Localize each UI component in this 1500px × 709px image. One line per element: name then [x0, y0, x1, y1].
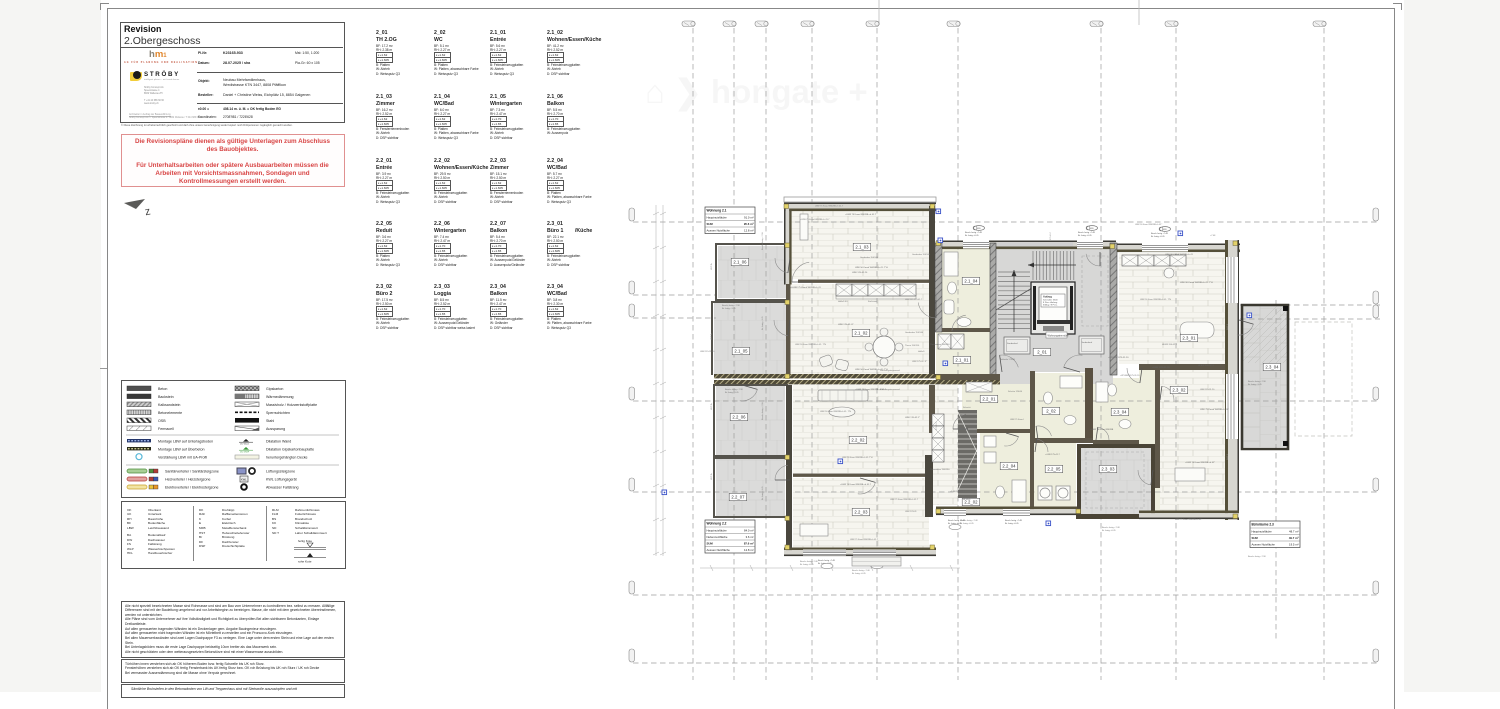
svg-text:Aussparung: Aussparung — [266, 427, 285, 431]
svg-text:OSB: OSB — [158, 419, 166, 423]
svg-text:Br. fertig +0.45: Br. fertig +0.45 — [1005, 522, 1019, 525]
svg-text:Br. fertig +0.45: Br. fertig +0.45 — [965, 234, 979, 237]
svg-text:HxBxD 60: HxBxD 60 — [838, 301, 848, 303]
svg-text:Beschr fertig +7.98: Beschr fertig +7.98 — [725, 388, 743, 391]
svg-text:Montage LBW auf Unterlagsboden: Montage LBW auf Unterlagsboden — [158, 439, 213, 443]
svg-text:GSD: GSD — [1163, 229, 1168, 231]
svg-text:630kg / 8 Pers.: 630kg / 8 Pers. — [1043, 304, 1058, 307]
svg-text:Besch fertig +7.48: Besch fertig +7.48 — [1005, 519, 1023, 522]
svg-text:heruntergehängten Decke: heruntergehängten Decke — [266, 455, 308, 459]
svg-text:LBW 123-41: LBW 123-41 — [905, 511, 917, 513]
svg-text:Wohnungstrennwand: Wohnungstrennwand — [880, 388, 900, 391]
svg-text:fertig Kote: fertig Kote — [298, 539, 312, 543]
svg-text:48.7 m²: 48.7 m² — [1289, 529, 1299, 533]
svg-text:+LBW 1175-31.20: +LBW 1175-31.20 — [1152, 367, 1170, 369]
svg-text:rohe Kote: rohe Kote — [298, 560, 312, 564]
svg-text:2.3_01: 2.3_01 — [1182, 336, 1196, 341]
svg-text:z: z — [144, 205, 152, 218]
svg-text:Lüftungssteigzone: Lüftungssteigzone — [266, 470, 295, 474]
svg-text:Beschr fertig +7.98: Beschr fertig +7.98 — [722, 304, 740, 307]
svg-text:HLS/ES: HLS/ES — [963, 499, 971, 501]
svg-text:12.8 m²: 12.8 m² — [744, 548, 754, 552]
svg-text:91.0 m²: 91.0 m² — [744, 215, 754, 219]
svg-text:Schuhe 120/40: Schuhe 120/40 — [1008, 391, 1023, 393]
svg-text:Wohnungstrennwand: Wohnungstrennwand — [880, 369, 900, 372]
svg-text:Aussen Nutzfläche: Aussen Nutzfläche — [1252, 542, 1276, 546]
svg-text:LBW 75 Knauf W628B.ch 41*: LBW 75 Knauf W628B.ch 41* — [1200, 409, 1229, 411]
svg-text:Br. fertig +0.45: Br. fertig +0.45 — [800, 563, 814, 566]
svg-text:2_01: 2_01 — [1037, 350, 1047, 355]
svg-text:Beschr fertig +7.98: Beschr fertig +7.98 — [1248, 380, 1266, 383]
svg-text:+LBW 75 Knauf W628B.ch 41.7: +LBW 75 Knauf W628B.ch 41.7 — [800, 219, 830, 221]
svg-text:LBW 90 Knauf W628B.ch 41. 7*H: LBW 90 Knauf W628B.ch 41. 7*H — [1180, 282, 1213, 284]
svg-text:SUM: SUM — [1252, 536, 1259, 540]
svg-text:LBW 90 Knauf W628B.ch 41: LBW 90 Knauf W628B.ch 41 — [1165, 254, 1194, 256]
svg-text:2.2_06: 2.2_06 — [732, 415, 746, 420]
svg-text:2.1_03: 2.1_03 — [855, 245, 869, 250]
svg-text:84.0 m²: 84.0 m² — [744, 528, 754, 532]
svg-text:95.6 m²: 95.6 m² — [744, 222, 754, 226]
svg-text:Wärmedämmung: Wärmedämmung — [266, 395, 294, 399]
svg-text:LBW 75 Knauf: LBW 75 Knauf — [1010, 419, 1024, 421]
svg-text:2.2_05: 2.2_05 — [1047, 467, 1061, 472]
svg-text:LBW 50 Knauf W628B.ch 41. 7*H: LBW 50 Knauf W628B.ch 41. 7*H — [795, 344, 827, 346]
svg-text:175-41.7: 175-41.7 — [1050, 231, 1052, 240]
svg-text:Beschr fertig +7.98: Beschr fertig +7.98 — [761, 402, 764, 420]
svg-text:Br. fertig +1.45: Br. fertig +1.45 — [722, 307, 736, 310]
svg-text:+KPLBW 1175-31.20: +KPLBW 1175-31.20 — [1108, 357, 1129, 359]
svg-text:Aussen Nutzfläche: Aussen Nutzfläche — [707, 228, 731, 232]
svg-text:Beschr fertig +7.48: Beschr fertig +7.48 — [800, 560, 818, 563]
svg-text:Sanitärverteiler / Sanitärstei: Sanitärverteiler / Sanitärsteigzone — [165, 470, 219, 474]
svg-text:Wohnungstrenntüre: Wohnungstrenntüre — [1048, 334, 1070, 337]
svg-text:Besch fertig +7.48: Besch fertig +7.48 — [818, 559, 836, 562]
svg-text:2.1_06: 2.1_06 — [733, 260, 747, 265]
svg-text:Br. fertig +1.45: Br. fertig +1.45 — [725, 391, 739, 394]
svg-text:LBW 115-31.20: LBW 115-31.20 — [1200, 389, 1215, 391]
svg-text:Hauptnutzfläche: Hauptnutzfläche — [1252, 529, 1273, 533]
svg-text:Beschr fertig +7.48: Beschr fertig +7.48 — [852, 569, 870, 572]
svg-text:+KPLBW 1175-31.20: +KPLBW 1175-31.20 — [1120, 375, 1140, 377]
svg-text:Br. fertig +0.45: Br. fertig +0.45 — [960, 522, 974, 525]
svg-text:Ankleide 175/40: Ankleide 175/40 — [1000, 358, 1016, 361]
svg-text:SUM: SUM — [707, 541, 714, 545]
svg-text:LBW 115-31.20: LBW 115-31.20 — [700, 351, 715, 353]
svg-text:Br. fertig +1.45: Br. fertig +1.45 — [761, 316, 764, 330]
svg-text:RAF K: RAF K — [1226, 323, 1229, 330]
svg-text:2.2_01: 2.2_01 — [982, 397, 996, 402]
svg-text:Garderobe 190/140: Garderobe 190/140 — [912, 253, 931, 256]
svg-text:DIL Wand: DIL Wand — [240, 443, 249, 445]
svg-text:LBW 50 Knauf W628B.ch 41. 7*H: LBW 50 Knauf W628B.ch 41. 7*H — [820, 411, 852, 413]
svg-text:+1.88 175-41.7: +1.88 175-41.7 — [950, 491, 966, 493]
svg-text:3.6 m²: 3.6 m² — [746, 535, 754, 539]
svg-text:2.2_02: 2.2_02 — [851, 438, 865, 443]
svg-text:Nebennutzfläche: Nebennutzfläche — [707, 535, 728, 539]
svg-text:Beschr fertig +7.48: Beschr fertig +7.48 — [960, 519, 978, 522]
svg-text:Sauberlauf: Sauberlauf — [1007, 342, 1018, 345]
svg-text:2.1_01: 2.1_01 — [955, 358, 969, 363]
svg-text:12.8 m²: 12.8 m² — [744, 228, 754, 232]
svg-text:LBW 90 Knauf W628B.ch 41. 7*H: LBW 90 Knauf W628B.ch 41. 7*H — [1140, 299, 1172, 301]
svg-text:Besch fertig +7.48: Besch fertig +7.48 — [1078, 231, 1096, 234]
svg-text:Aufzug: Aufzug — [1043, 295, 1052, 299]
svg-text:Br. fertig +0.45: Br. fertig +0.45 — [1151, 235, 1165, 238]
svg-text:Br. fertig +0.45: Br. fertig +0.45 — [1078, 234, 1092, 237]
svg-text:KWL Lüftungsgerät: KWL Lüftungsgerät — [266, 478, 297, 482]
svg-text:Sperrschichten: Sperrschichten — [266, 411, 290, 415]
svg-text:2.2_03: 2.2_03 — [854, 510, 868, 515]
svg-text:Dilatation Wand: Dilatation Wand — [266, 439, 291, 443]
svg-text:Kalksandstein: Kalksandstein — [158, 403, 180, 407]
svg-text:HLBW 200-62.3: HLBW 200-62.3 — [1162, 344, 1178, 346]
svg-text:LBW 75 Knauf W628B.ch 41.7: LBW 75 Knauf W628B.ch 41.7 — [815, 206, 844, 208]
svg-text:HxBxD: HxBxD — [918, 351, 925, 353]
svg-text:2.3_02: 2.3_02 — [1172, 388, 1186, 393]
svg-text:Br. fertig +1.45: Br. fertig +1.45 — [1248, 383, 1262, 386]
svg-text:+HLBW 75 Knauf W628B.ch 41: +HLBW 75 Knauf W628B.ch 41 — [790, 287, 821, 289]
svg-text:LBW 115 170-41.7: LBW 115 170-41.7 — [905, 299, 923, 301]
svg-text:Betonelemente: Betonelemente — [158, 411, 182, 415]
svg-text:175-41.7: 175-41.7 — [936, 421, 938, 430]
svg-text:2.1_04: 2.1_04 — [964, 279, 978, 284]
svg-text:+LBW 75 Knauf W628B: +LBW 75 Knauf W628B — [1090, 429, 1114, 431]
svg-text:DIL GKBP: DIL GKBP — [240, 451, 250, 453]
svg-text:+4.88 175-41.7: +4.88 175-41.7 — [1045, 454, 1061, 456]
svg-text:2.2_07: 2.2_07 — [731, 495, 745, 500]
svg-text:Beschr fertig +7.48: Beschr fertig +7.48 — [1102, 526, 1120, 529]
svg-text:Br. fertig +0.45: Br. fertig +0.45 — [1102, 529, 1116, 532]
svg-text:Wohnung 2.1: Wohnung 2.1 — [707, 209, 727, 213]
svg-text:HST Br: HST Br — [710, 263, 713, 270]
svg-text:Kochinsel: Kochinsel — [868, 301, 878, 303]
svg-text:Verstärkung LBW mit UA-Profil: Verstärkung LBW mit UA-Profil — [158, 455, 207, 459]
svg-text:Fermacell: Fermacell — [158, 427, 174, 431]
svg-text:49.7 m²: 49.7 m² — [1289, 536, 1299, 540]
svg-text:Massivholz / Holzwerkstoffplat: Massivholz / Holzwerkstoffplatte — [266, 403, 317, 407]
svg-text:KWL: KWL — [241, 477, 247, 481]
svg-text:LBW 170-42.1*: LBW 170-42.1* — [905, 417, 920, 419]
svg-text:LBW 50 Knauf W628B.ch 41.7*H: LBW 50 Knauf W628B.ch 41.7*H — [842, 457, 873, 459]
svg-text:Stahl: Stahl — [266, 419, 274, 423]
svg-text:Heizverteiler / Heizsteigzone: Heizverteiler / Heizsteigzone — [165, 478, 211, 482]
svg-text:Therm 150/150: Therm 150/150 — [905, 344, 920, 347]
svg-text:2.1_05: 2.1_05 — [734, 349, 748, 354]
svg-text:2.3_03: 2.3_03 — [1101, 467, 1115, 472]
svg-text:Beschr fertig +7.98: Beschr fertig +7.98 — [1248, 555, 1266, 558]
svg-text:Beton: Beton — [158, 387, 167, 391]
svg-text:RAF K: RAF K — [1226, 453, 1229, 460]
svg-text:Beschr fertig +7.98: Beschr fertig +7.98 — [761, 232, 764, 250]
svg-text:Br. fertig +1.45: Br. fertig +1.45 — [761, 486, 764, 500]
svg-text:+7.48: +7.48 — [1210, 235, 1216, 237]
svg-text:LBW 175-42. 8*: LBW 175-42. 8* — [912, 361, 927, 363]
svg-text:HLBW 200-52.3: HLBW 200-52.3 — [1198, 365, 1214, 367]
svg-text:Thermüsse 150/150: Thermüsse 150/150 — [930, 468, 950, 471]
svg-text:LBW 90 Knauf W628B.ch 41*: LBW 90 Knauf W628B.ch 41* — [1135, 224, 1162, 226]
svg-text:LBW 50 Knauf W628B.ch 41.7*H: LBW 50 Knauf W628B.ch 41.7*H — [860, 381, 893, 383]
svg-text:Wohnung 2.2: Wohnung 2.2 — [707, 522, 727, 526]
svg-text:Garderobe 150/140: Garderobe 150/140 — [860, 256, 879, 259]
svg-text:Backstein: Backstein — [158, 395, 174, 399]
svg-text:LBW 75 Knauf W628B.ch 41.7: LBW 75 Knauf W628B.ch 41.7 — [890, 499, 919, 501]
svg-text:HST Br: HST Br — [710, 473, 713, 480]
svg-text:2.3_04: 2.3_04 — [1265, 365, 1279, 370]
svg-text:LBW 50 Knauf W628B.ch 41. 7*H: LBW 50 Knauf W628B.ch 41. 7*H — [855, 267, 888, 269]
svg-text:Thermüsse 150/150: Thermüsse 150/150 — [930, 343, 950, 346]
svg-text:87.6 m²: 87.6 m² — [744, 541, 754, 545]
svg-text:LBW 175-42. 8*: LBW 175-42. 8* — [838, 324, 854, 326]
svg-text:Garderobe 150/140: Garderobe 150/140 — [905, 331, 924, 334]
svg-text:SUM: SUM — [707, 222, 714, 226]
svg-text:Gipskarton: Gipskarton — [266, 387, 283, 391]
svg-text:⌂ ❯ hongate +: ⌂ ❯ hongate + — [645, 73, 868, 112]
svg-text:Abwasser Fallstrang: Abwasser Fallstrang — [266, 486, 299, 490]
svg-text:Montage LBW auf Überbeton: Montage LBW auf Überbeton — [158, 447, 205, 451]
svg-text:HST Br: HST Br — [710, 403, 713, 410]
svg-text:Hauptnutzfläche: Hauptnutzfläche — [707, 215, 728, 219]
svg-text:2.1_02: 2.1_02 — [854, 331, 868, 336]
svg-text:LBW 75 Knauf W628B.ch 41.7: LBW 75 Knauf W628B.ch 41.7 — [850, 539, 879, 541]
svg-text:GSD: GSD — [977, 228, 982, 230]
svg-text:2.2_04: 2.2_04 — [1002, 464, 1016, 469]
svg-text:Aussen Nutzfläche: Aussen Nutzfläche — [707, 548, 731, 552]
svg-text:2_02: 2_02 — [1046, 409, 1056, 414]
svg-text:Sauberlauf: Sauberlauf — [1082, 341, 1093, 344]
svg-text:19.5 m²: 19.5 m² — [1289, 542, 1299, 546]
svg-text:Dilatation Gipskartonbauplatte: Dilatation Gipskartonbauplatte — [266, 447, 314, 451]
svg-text:Hauptnutzfläche: Hauptnutzfläche — [707, 528, 728, 532]
svg-text:+LBW 75 Knauf W628B.ch 41*: +LBW 75 Knauf W628B.ch 41* — [1185, 462, 1215, 464]
svg-text:LBW 115: LBW 115 — [936, 291, 938, 300]
svg-text:Besch fertig +7.48: Besch fertig +7.48 — [965, 231, 983, 234]
svg-text:Schacht: Schacht — [963, 406, 971, 409]
svg-text:HST Br: HST Br — [710, 333, 713, 340]
svg-text:Br. fertig +0.45: Br. fertig +0.45 — [852, 572, 866, 575]
svg-text:+LBW 75 Knauf W628B.ch 41.7: +LBW 75 Knauf W628B.ch 41.7 — [840, 484, 872, 486]
svg-text:+LBW 75 Knauf W628B.ch 41.7: +LBW 75 Knauf W628B.ch 41.7 — [845, 214, 877, 216]
svg-text:LBW 75 Knauf W628B.ch 41*: LBW 75 Knauf W628B.ch 41* — [1175, 519, 1202, 521]
svg-text:Büroräume 2.3: Büroräume 2.3 — [1252, 523, 1275, 527]
svg-text:LBW 125-41.20: LBW 125-41.20 — [852, 272, 868, 274]
svg-text:Elektroverteiler / Elektrostei: Elektroverteiler / Elektrosteigzone — [165, 486, 219, 490]
svg-text:Besch fertig +7.48: Besch fertig +7.48 — [1151, 232, 1169, 235]
svg-text:GSD: GSD — [1090, 228, 1095, 230]
svg-text:2.3_04: 2.3_04 — [1113, 410, 1127, 415]
